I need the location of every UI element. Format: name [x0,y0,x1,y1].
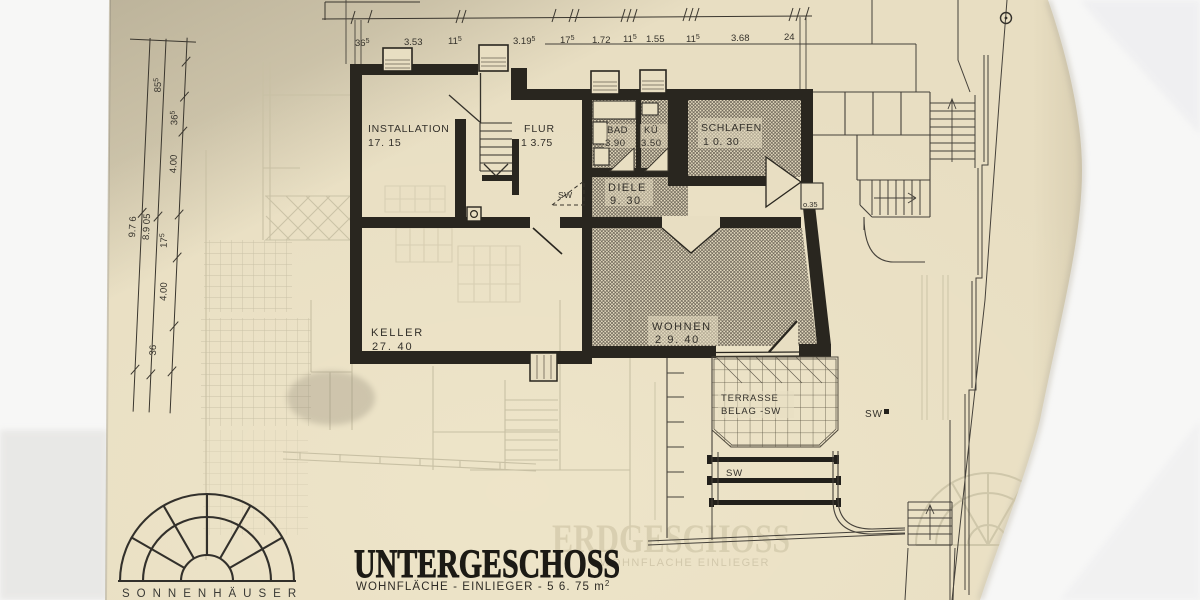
svg-text:WOHNEN: WOHNEN [652,321,712,333]
svg-text:WOHNFLÄCHE - EINLIEGER - 5 6: WOHNFLÄCHE - EINLIEGER - 5 6. 75 m2 [356,579,610,593]
svg-text:24: 24 [784,32,795,43]
svg-text:SW: SW [865,409,883,420]
svg-text:3.50: 3.50 [641,138,662,149]
svg-text:BAD: BAD [607,125,628,136]
svg-text:UNTERGESCHOSS: UNTERGESCHOSS [354,541,620,586]
svg-text:INSTALLATION: INSTALLATION [368,123,450,135]
svg-text:TERRASSE: TERRASSE [721,393,779,404]
svg-text:3.53: 3.53 [404,37,423,48]
svg-text:KÜ: KÜ [644,125,658,136]
svg-text:SW: SW [558,190,573,200]
svg-text:BELAG -SW: BELAG -SW [721,406,781,417]
svg-text:DIELE: DIELE [608,182,647,194]
svg-text:SCHLAFEN: SCHLAFEN [701,122,762,134]
svg-text:3.90: 3.90 [605,138,626,149]
svg-text:SW: SW [726,468,743,479]
svg-text:36: 36 [148,345,159,356]
svg-text:4.00: 4.00 [158,282,170,301]
svg-text:SONNENHÄUSER: SONNENHÄUSER [122,588,303,600]
svg-text:KELLER: KELLER [371,327,424,339]
svg-text:9. 30: 9. 30 [610,195,641,207]
svg-text:9.7 6: 9.7 6 [127,216,139,238]
svg-text:WOHNFLACHE EINLIEGER: WOHNFLACHE EINLIEGER [600,557,770,569]
svg-text:o.35: o.35 [803,200,818,209]
svg-text:8.9 05: 8.9 05 [141,213,153,240]
svg-text:2 9. 40: 2 9. 40 [655,334,700,346]
svg-text:3.68: 3.68 [731,33,750,44]
svg-text:1.55: 1.55 [646,34,665,45]
svg-text:1 0. 30: 1 0. 30 [703,136,739,148]
svg-text:4.00: 4.00 [168,154,180,173]
svg-text:1 3.75: 1 3.75 [521,137,553,149]
svg-text:17. 15: 17. 15 [368,137,401,149]
svg-text:27. 40: 27. 40 [372,341,413,353]
svg-text:FLUR: FLUR [524,123,555,135]
